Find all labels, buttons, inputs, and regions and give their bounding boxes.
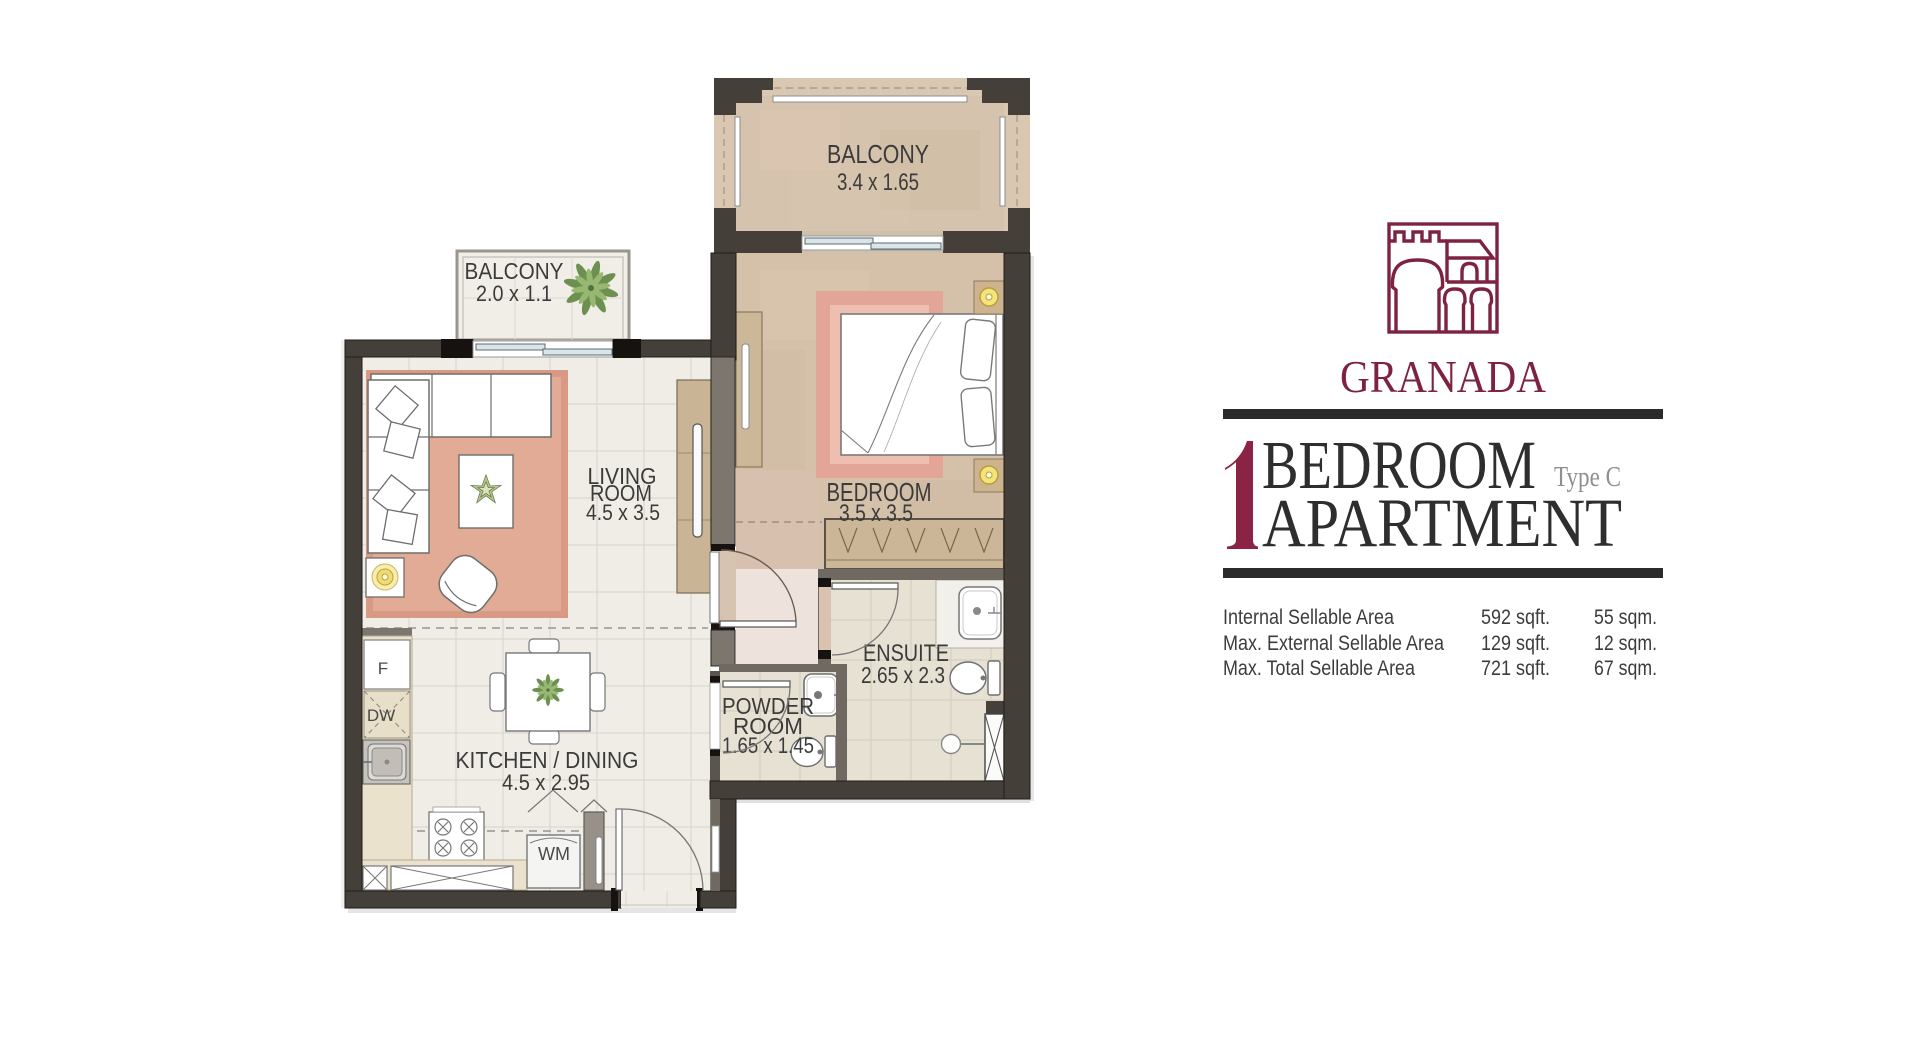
svg-text:721 sqft.: 721 sqft. <box>1481 656 1550 680</box>
svg-text:WM: WM <box>538 844 570 864</box>
svg-text:Internal Sellable Area: Internal Sellable Area <box>1223 605 1394 629</box>
svg-text:129 sqft.: 129 sqft. <box>1481 631 1550 655</box>
svg-text:4.5 x 2.95: 4.5 x 2.95 <box>502 770 590 795</box>
svg-text:DW: DW <box>367 706 395 725</box>
svg-text:592 sqft.: 592 sqft. <box>1481 605 1550 629</box>
svg-text:Max. Total Sellable Area: Max. Total Sellable Area <box>1223 656 1415 680</box>
svg-text:3.5 x 3.5: 3.5 x 3.5 <box>839 500 913 527</box>
svg-text:67 sqm.: 67 sqm. <box>1594 656 1657 680</box>
svg-text:GRANADA: GRANADA <box>1340 351 1546 402</box>
svg-text:1.65 x 1.45: 1.65 x 1.45 <box>722 733 814 758</box>
svg-text:F: F <box>378 659 388 678</box>
svg-text:4.5 x 3.5: 4.5 x 3.5 <box>586 500 660 525</box>
svg-text:Max. External Sellable Area: Max. External Sellable Area <box>1223 631 1444 655</box>
svg-text:APARTMENT: APARTMENT <box>1262 485 1622 561</box>
svg-text:BALCONY: BALCONY <box>827 139 929 169</box>
svg-text:3.4 x 1.65: 3.4 x 1.65 <box>837 169 919 196</box>
svg-text:12 sqm.: 12 sqm. <box>1594 631 1657 655</box>
svg-text:2.65 x 2.3: 2.65 x 2.3 <box>861 662 945 688</box>
svg-text:2.0 x 1.1: 2.0 x 1.1 <box>476 281 552 306</box>
svg-text:55 sqm.: 55 sqm. <box>1594 605 1657 629</box>
